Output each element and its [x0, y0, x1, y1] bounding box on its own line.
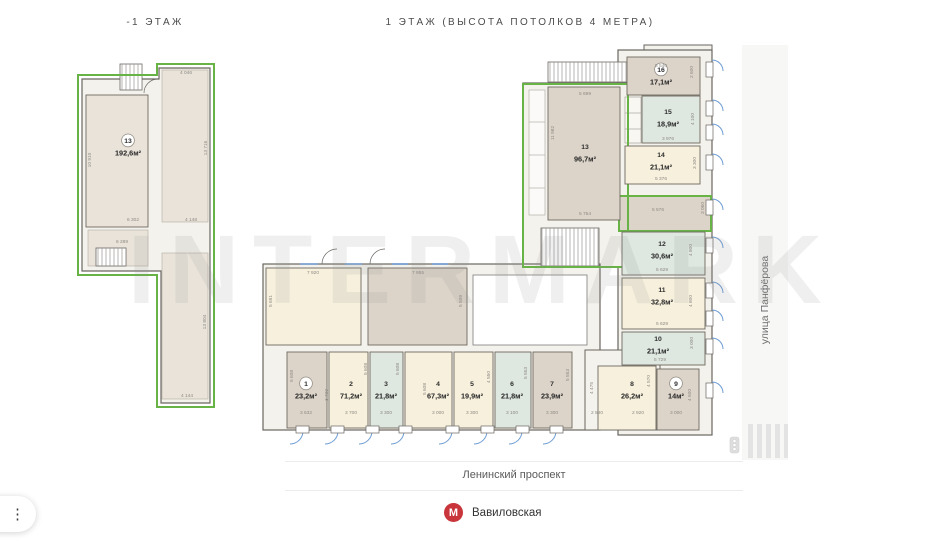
dim-label: 7 955 [412, 270, 424, 276]
room-number: 11 [658, 287, 665, 294]
dim-label: 4 570 [646, 375, 652, 387]
dim-label: 4 475 [589, 382, 595, 394]
dim-label: 11 982 [550, 126, 556, 141]
room-shape [86, 95, 148, 227]
map-controls-card: ⋮ [0, 496, 36, 532]
dim-label: 5 608 [289, 370, 295, 382]
room-area: 96,7м² [574, 155, 597, 164]
dim-label: 3 300 [546, 410, 558, 416]
dim-label: 5 629 [656, 267, 668, 273]
dim-label: 6 289 [116, 239, 128, 245]
room-area: 19,9м² [461, 392, 484, 401]
room-area: 21,1м² [650, 163, 673, 172]
dim-label: 3 700 [345, 410, 357, 416]
dim-label: 5 729 [654, 357, 666, 363]
room: 123,2м² [287, 352, 327, 428]
metro-station-name: Вавиловская [472, 507, 541, 519]
room-shape [495, 352, 531, 428]
room: 621,8м² [495, 352, 531, 428]
dim-label: 2 600 [689, 66, 695, 78]
room-area: 192,6м² [115, 149, 142, 158]
street-label-leninsky-prospekt: Ленинский проспект [285, 469, 743, 481]
dim-label: 3 300 [380, 410, 392, 416]
street-band-right [730, 45, 788, 460]
dim-label: 2 580 [591, 410, 603, 416]
room: 519,9м² [454, 352, 493, 428]
dim-label: 2 920 [632, 410, 644, 416]
room: 13192,6м² [86, 95, 148, 227]
room-shape [329, 352, 368, 428]
room: 723,9м² [533, 352, 572, 428]
room-area: 23,2м² [295, 392, 318, 401]
dim-label: 4 500 [687, 389, 693, 401]
room-number: 3 [384, 381, 388, 388]
dim-label: 3 000 [670, 410, 682, 416]
street-divider-line [285, 461, 743, 462]
dim-label: 4 800 [688, 244, 694, 256]
room-area: 67,3м² [427, 392, 450, 401]
room-area: 26,2м² [621, 392, 644, 401]
dim-label: 5 691 [268, 295, 274, 307]
room-number: 14 [657, 152, 665, 159]
dim-label: 3 100 [506, 410, 518, 416]
street-divider-line [285, 490, 743, 491]
dim-label: 5 509 [458, 295, 464, 307]
dim-label: 5 608 [422, 383, 428, 395]
room-area: 21,8м² [375, 392, 398, 401]
dim-label: 5 699 [579, 91, 591, 97]
dim-label: 10 910 [87, 152, 93, 167]
dim-label: 4 100 [690, 113, 696, 125]
room-area: 18,9м² [657, 120, 680, 129]
dim-label: 3 976 [662, 136, 674, 142]
room-area: 21,1м² [647, 347, 670, 356]
dim-label: 5 608 [395, 363, 401, 375]
dim-label: 3 300 [466, 410, 478, 416]
void-area [473, 275, 587, 345]
dim-label: 4 046 [180, 70, 192, 76]
dim-label: 4 800 [688, 295, 694, 307]
traffic-light-icon [730, 437, 739, 453]
dim-label: 7 920 [307, 270, 319, 276]
dim-label: 4 148 [185, 217, 197, 223]
dim-label: 3 060 [700, 202, 706, 214]
metro-logo-letter: М [449, 507, 458, 519]
dim-label: 3 000 [432, 410, 444, 416]
dim-label: 5 754 [579, 211, 591, 217]
dim-label: 3 000 [689, 337, 695, 349]
dim-label: 13 716 [203, 140, 209, 155]
metro-station-row: М Вавиловская [444, 503, 541, 522]
dim-label: 13 804 [202, 314, 208, 329]
kebab-menu-button[interactable]: ⋮ [8, 505, 27, 524]
room-number: 5 [470, 381, 474, 388]
street-label-panferova: улица Панфёрова [759, 256, 771, 344]
dim-label: 4 550 [486, 371, 492, 383]
room-number: 13 [581, 144, 589, 151]
room-area: 14м² [668, 392, 685, 401]
room-area: 30,6м² [651, 252, 674, 261]
room-shape [454, 352, 493, 428]
dim-label: 3 632 [300, 410, 312, 416]
metro-icon: М [444, 503, 463, 522]
room-area: 32,8м² [651, 298, 674, 307]
room-area: 71,2м² [340, 392, 363, 401]
room-area: 21,8м² [501, 392, 524, 401]
room-number: 2 [349, 381, 353, 388]
dim-label: 5 629 [656, 321, 668, 327]
listing-outline-green [619, 196, 711, 231]
room-number: 12 [658, 241, 666, 248]
floorplan-page: 13192,6м²1396,7м²1617,1м²1518,9м²1421,1м… [0, 0, 947, 556]
dim-label: 3 700 [324, 389, 330, 401]
room-number: 9 [674, 381, 678, 388]
dim-label: 3 300 [692, 157, 698, 169]
room: 271,2м² [329, 352, 368, 428]
room-number: 7 [550, 381, 554, 388]
dim-label: 5 553 [565, 369, 571, 381]
room-number: 10 [654, 336, 662, 343]
entry-door-arcs [322, 249, 385, 264]
dim-label: 5 608 [363, 363, 369, 375]
dim-label: 4 144 [181, 393, 193, 399]
dim-label: 5 553 [523, 367, 529, 379]
room-area: 23,9м² [541, 392, 564, 401]
room-number: 8 [630, 381, 634, 388]
floor-minus1-title: -1 ЭТАЖ [75, 17, 235, 28]
room-shape [533, 352, 572, 428]
floor1-title: 1 ЭТАЖ (ВЫСОТА ПОТОЛКОВ 4 МЕТРА) [340, 17, 700, 28]
room-number: 1 [304, 381, 308, 388]
dim-label: 5 376 [655, 176, 667, 182]
room-number: 13 [124, 138, 132, 145]
dim-label: 6 302 [127, 217, 139, 223]
room-shape [548, 87, 620, 220]
room: 467,3м² [405, 352, 452, 428]
room-number: 15 [664, 109, 672, 116]
dim-label: 5 576 [652, 207, 664, 213]
room: 1396,7м² [548, 87, 620, 220]
dim-label: 5 540 [655, 63, 667, 69]
room-number: 6 [510, 381, 514, 388]
room-number: 4 [436, 381, 440, 388]
room-shape [405, 352, 452, 428]
room-area: 17,1м² [650, 78, 673, 87]
